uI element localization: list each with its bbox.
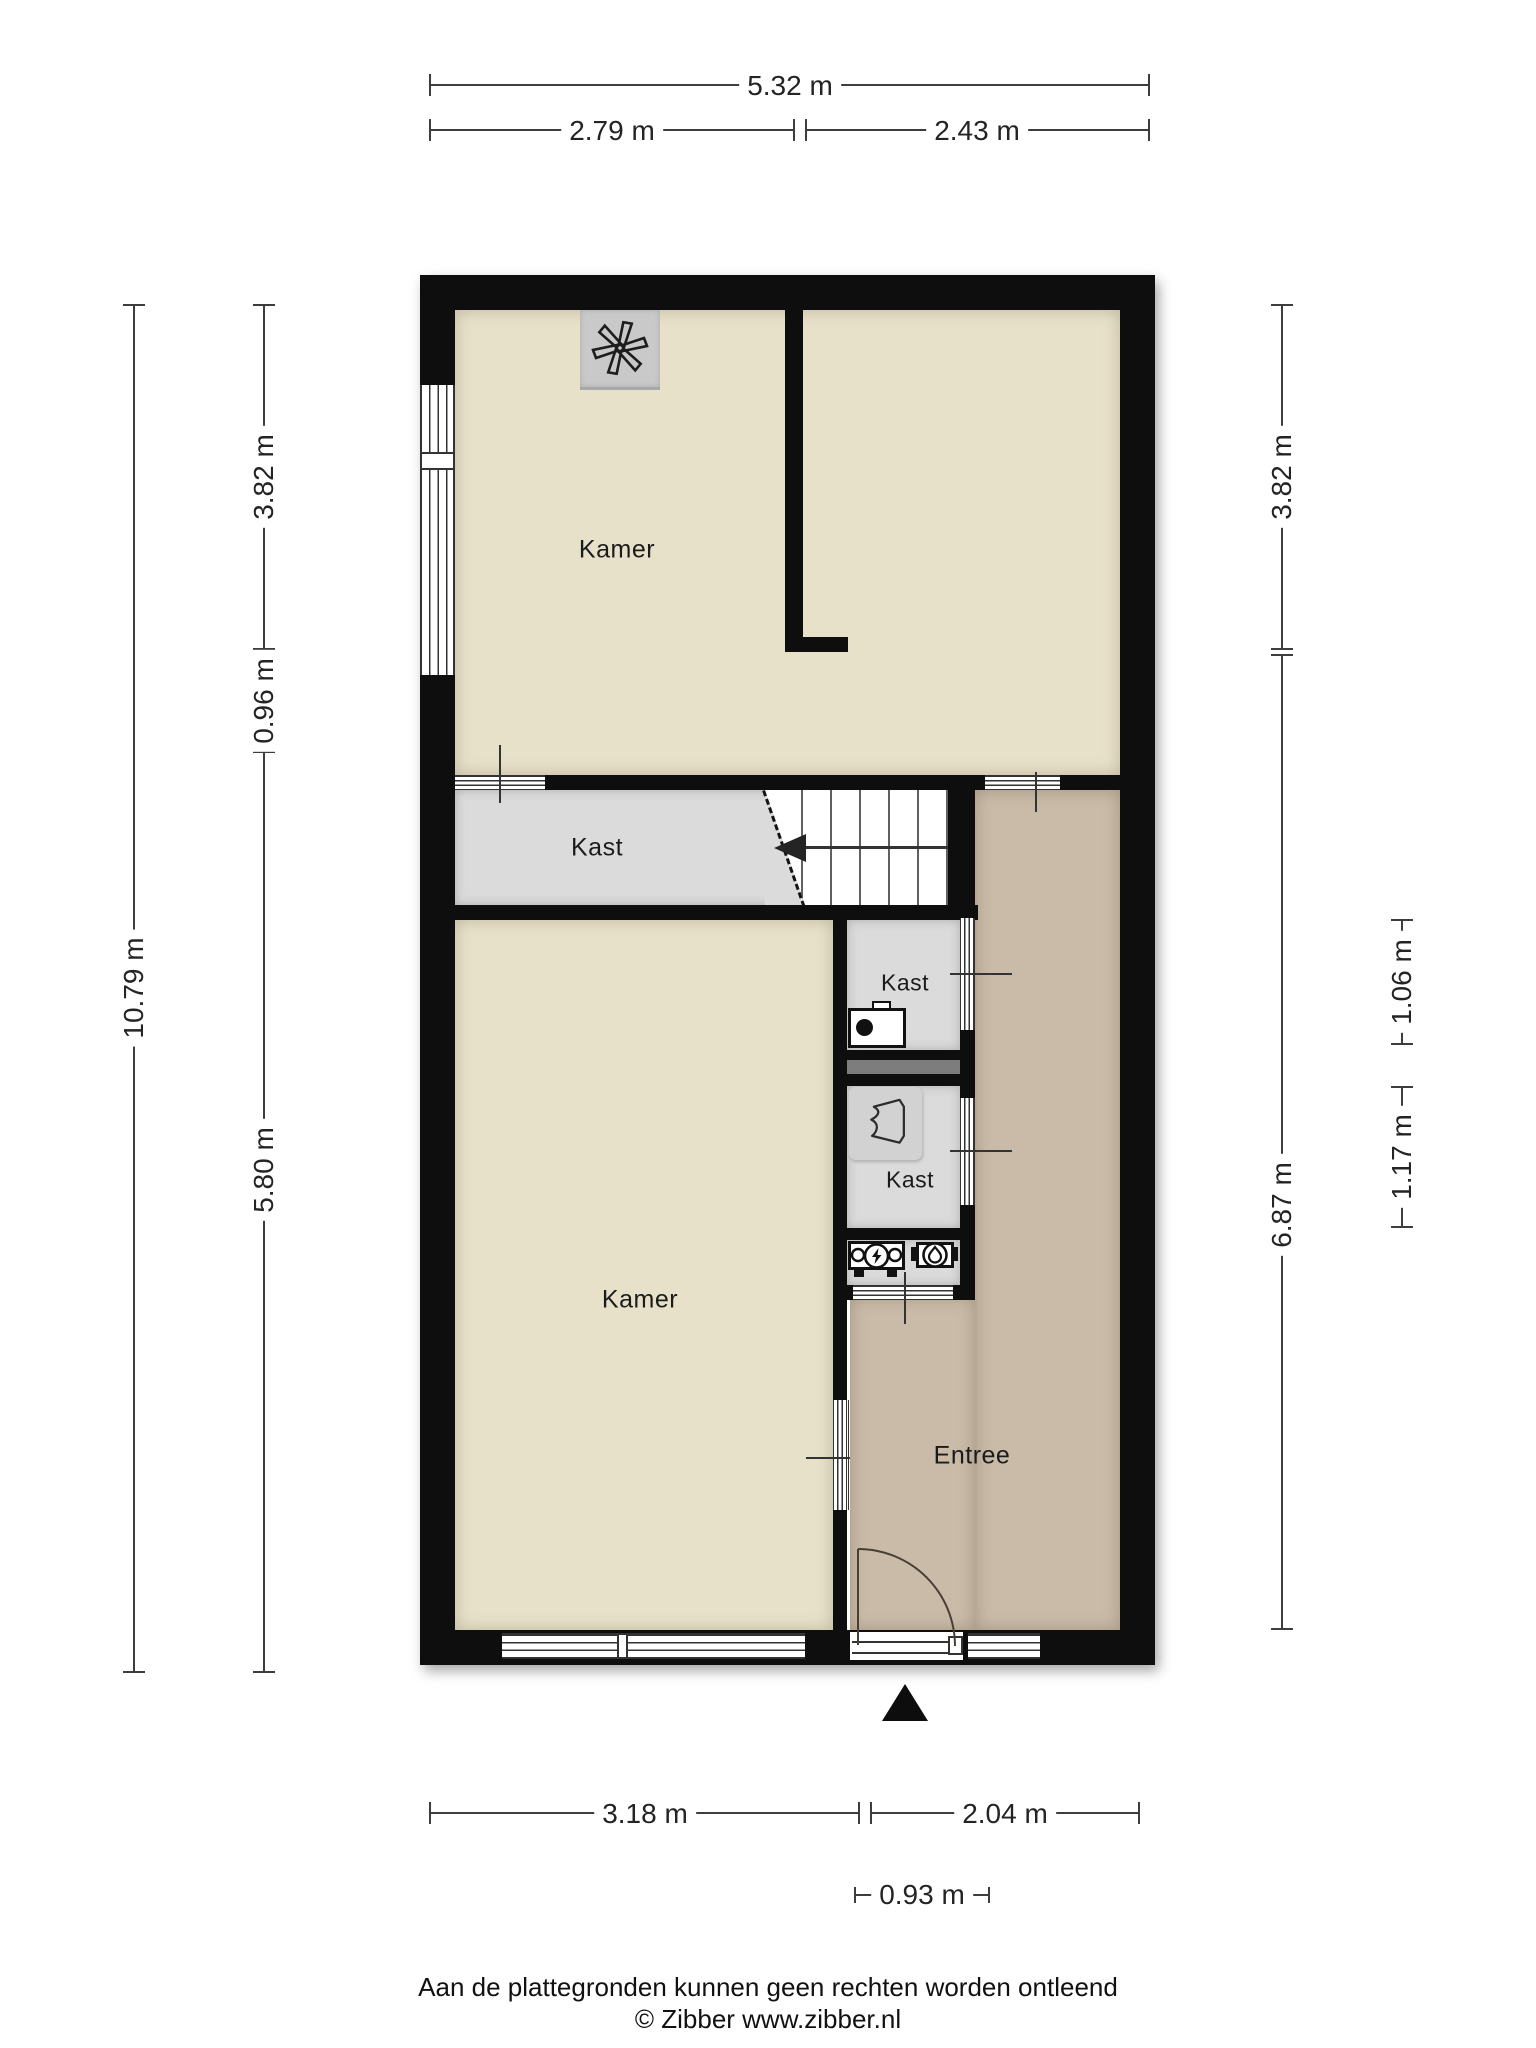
wall-kastband-kamer [455,905,978,920]
wall-divider-top-room [785,310,803,652]
wall-kast1-bottom [833,1050,975,1060]
dim-tick [1391,1226,1413,1228]
dim-tick [988,1887,990,1903]
dim-tick [1271,304,1293,306]
dim-tick [253,304,275,306]
label-kast-understairs: Kast [571,834,623,863]
dim-tick [1391,1043,1413,1045]
boiler-top-tab [872,1001,891,1010]
window-left-mullion [420,452,455,470]
dim-width-left: 2.79 m [561,115,663,147]
door-kamer-entree-swing [806,1457,850,1459]
door-meter-niche [853,1285,953,1300]
dim-height-top: 3.82 m [248,426,280,528]
dim-tick [1391,1086,1413,1088]
door-kast1-swing [950,973,1012,975]
window-left-wall [420,385,455,675]
dim-tick [858,1802,860,1824]
electricity-meter-icon [848,1238,905,1274]
dim-height-total: 10.79 m [118,929,150,1046]
dim-tick [123,1671,145,1673]
shaft-duct [847,1060,960,1074]
dim-width-total: 5.32 m [739,70,841,102]
room-kamer-bottom [455,920,833,1630]
footer-credit: © Zibber www.zibber.nl [0,2004,1536,2035]
floorplan-page: Kamer Kast Kast Kast Kamer Entree 5.32 m… [0,0,1536,2048]
door-kamer-to-entree-top [985,775,1060,790]
front-door-leaf [857,1549,859,1645]
wall-right [1120,310,1155,1630]
dim-height-mid: 0.96 m [248,650,280,752]
coat-closet-tile [849,1087,922,1160]
dim-tick [1271,648,1293,650]
dim-height-bottom: 5.80 m [248,1119,280,1221]
dim-kast2: 1.17 m [1386,1106,1418,1208]
boiler-knob-icon [856,1019,873,1036]
wall-stairs-right [948,790,975,920]
dim-tick [1148,74,1150,96]
dim-tick [429,74,431,96]
dim-tick [854,1887,856,1903]
label-kamer-top: Kamer [579,536,655,565]
water-meter-icon [916,1238,954,1274]
wall-meter-door-corner-left [833,1285,853,1300]
door-kamer-to-kast-swing [499,745,501,803]
wall-shaft-bottom [833,1074,975,1086]
label-kamer-bottom: Kamer [602,1286,678,1315]
wall-meter-door-corner-right [953,1285,975,1300]
dim-tick [253,1671,275,1673]
stairs-direction-arrow-icon [774,834,806,862]
door-kamer-to-entree [833,1400,849,1510]
dim-tick [805,119,807,141]
dim-tick [1138,1802,1140,1824]
door-meter-swing [904,1272,906,1324]
dim-tick [1148,119,1150,141]
room-entree-corridor [975,790,1120,1630]
window-bottom-right [628,1633,805,1659]
dim-right-top: 3.82 m [1266,426,1298,528]
window-bottom-mullion [617,1633,628,1659]
wall-divider-stub [785,637,848,652]
door-kast2-swing [950,1150,1012,1152]
dim-right-bottom: 6.87 m [1266,1154,1298,1256]
wall-top [420,275,1155,310]
entrance-arrow-icon [882,1684,928,1721]
room-kast-understairs [455,790,803,905]
dim-tick [1271,1628,1293,1630]
window-sidelight [968,1633,1040,1659]
door-entree-top-swing [1035,772,1037,812]
dim-bottom-right: 2.04 m [954,1798,1056,1830]
label-entree: Entree [934,1442,1011,1471]
dim-kast1: 1.06 m [1386,931,1418,1033]
label-kast-1: Kast [881,970,929,997]
dim-tick [429,1802,431,1824]
label-kast-2: Kast [886,1167,934,1194]
dim-bottom-left: 3.18 m [594,1798,696,1830]
dim-tick [1391,919,1413,921]
wall-column-left [833,920,847,1630]
ventilation-unit [580,310,660,390]
window-bottom-left [502,1633,617,1659]
dim-door: 0.93 m [871,1879,973,1911]
stairs-walkline [806,846,948,849]
dim-width-right: 2.43 m [926,115,1028,147]
dim-tick [1271,654,1293,656]
dim-tick [793,119,795,141]
dim-tick [870,1802,872,1824]
footer-disclaimer: Aan de plattegronden kunnen geen rechten… [0,1972,1536,2003]
fan-icon [590,318,650,378]
coat-closet-icon [854,1093,916,1153]
dim-tick [123,304,145,306]
dim-tick [429,119,431,141]
dim-right-bottom-line [1281,655,1283,1630]
front-door-line-2 [852,1652,961,1654]
